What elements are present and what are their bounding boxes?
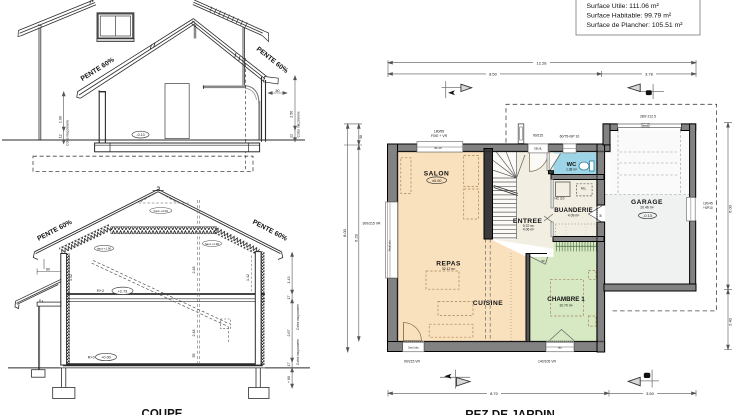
svg-text:8.50: 8.50 — [489, 72, 498, 77]
svg-text:60/75+SP 10: 60/75+SP 10 — [560, 134, 580, 138]
svg-text:6.00: 6.00 — [728, 204, 733, 213]
svg-text:120/45: 120/45 — [703, 202, 713, 206]
svg-text:2.67: 2.67 — [287, 330, 291, 337]
svg-text:Surface Utile: 111.06 m²: Surface Utile: 111.06 m² — [587, 3, 660, 10]
svg-text:3.78: 3.78 — [645, 72, 654, 77]
svg-text:90/215 VR: 90/215 VR — [404, 360, 421, 364]
svg-text:300/215 VR: 300/215 VR — [363, 222, 381, 226]
svg-text:90: 90 — [541, 259, 545, 263]
svg-text:2.50: 2.50 — [290, 111, 294, 118]
svg-text:60: 60 — [46, 267, 50, 271]
svg-text:55: 55 — [192, 354, 196, 358]
svg-text:CHAMBRE 1: CHAMBRE 1 — [547, 296, 585, 303]
svg-text:Cotes maçonnerie: Cotes maçonnerie — [66, 120, 70, 146]
svg-text:10.70 m²: 10.70 m² — [559, 304, 573, 308]
svg-text:2.48: 2.48 — [192, 267, 196, 274]
svg-text:280/ 212.5: 280/ 212.5 — [640, 115, 656, 119]
svg-text:+ 60: + 60 — [287, 376, 291, 383]
svg-text:HC 3.0: HC 3.0 — [555, 196, 565, 200]
svg-text:haut +4.06: haut +4.06 — [154, 209, 169, 213]
svg-text:SEUIL: SEUIL — [534, 146, 543, 150]
svg-text:seuil: seuil — [643, 124, 649, 128]
svg-text:Cotes maçonnerie: Cotes maçonnerie — [296, 304, 300, 330]
svg-text:20.46 m²: 20.46 m² — [640, 206, 654, 210]
svg-text:+SP10: +SP10 — [703, 206, 713, 210]
svg-text:Seuil alu: Seuil alu — [388, 240, 392, 251]
svg-text:±0.00: ±0.00 — [432, 179, 441, 183]
svg-text:3.50: 3.50 — [646, 391, 655, 396]
svg-text:SALON: SALON — [424, 171, 450, 178]
svg-text:6.29: 6.29 — [353, 233, 358, 242]
svg-text:Seuil alu: Seuil alu — [408, 346, 419, 350]
svg-text:8.70: 8.70 — [490, 391, 499, 396]
svg-text:1.00: 1.00 — [59, 116, 63, 123]
svg-text:90/215: 90/215 — [533, 134, 543, 138]
svg-text:haut +1.90: haut +1.90 — [205, 242, 220, 246]
svg-text:80: 80 — [276, 89, 280, 93]
svg-text:1.42: 1.42 — [246, 274, 250, 281]
svg-text:140/105 VR: 140/105 VR — [538, 360, 556, 364]
svg-text:M.L: M.L — [581, 186, 587, 190]
svg-text:1.42: 1.42 — [69, 274, 73, 281]
svg-text:+0.00: +0.00 — [101, 356, 111, 360]
svg-text:FIXE + VR: FIXE + VR — [431, 134, 448, 138]
svg-text:2.40: 2.40 — [728, 317, 733, 326]
svg-text:17: 17 — [287, 296, 291, 300]
svg-text:-0.13: -0.13 — [136, 133, 144, 137]
svg-text:Cotes maçonnerie: Cotes maçonnerie — [297, 111, 301, 137]
svg-text:4.06 m²: 4.06 m² — [523, 228, 535, 232]
svg-text:REZ DE JARDIN: REZ DE JARDIN — [465, 408, 555, 415]
svg-text:12.28: 12.28 — [536, 60, 547, 65]
svg-text:1.38 m²: 1.38 m² — [566, 168, 577, 172]
svg-text:-0.13: -0.13 — [643, 214, 652, 218]
svg-text:#1.20: #1.20 — [435, 146, 442, 150]
svg-text:R+0: R+0 — [88, 356, 95, 360]
svg-text:Cotes maçonnerie: Cotes maçonnerie — [296, 339, 300, 365]
svg-text:32.12 m²: 32.12 m² — [442, 267, 456, 271]
svg-text:+2.73: +2.73 — [118, 289, 128, 293]
svg-text:R+2: R+2 — [97, 289, 104, 293]
svg-text:haut +1.90: haut +1.90 — [97, 247, 112, 251]
svg-text:4.09 m²: 4.09 m² — [568, 213, 580, 217]
svg-text:58: 58 — [359, 135, 363, 139]
svg-text:alu: alu — [558, 346, 562, 350]
svg-text:8.00: 8.00 — [342, 228, 347, 237]
svg-text:Surface Habitable: 99.79 m²: Surface Habitable: 99.79 m² — [587, 12, 672, 19]
svg-text:12: 12 — [59, 134, 63, 138]
svg-text:Surface de Plancher: 105.51 m²: Surface de Plancher: 105.51 m² — [587, 22, 684, 29]
svg-text:80: 80 — [599, 214, 603, 218]
svg-text:12: 12 — [290, 134, 294, 138]
svg-text:17: 17 — [287, 363, 291, 367]
svg-text:CUISINE: CUISINE — [473, 300, 503, 307]
svg-text:2.48: 2.48 — [192, 330, 196, 337]
svg-text:1.43: 1.43 — [287, 277, 291, 284]
svg-text:COUPE: COUPE — [142, 409, 183, 415]
